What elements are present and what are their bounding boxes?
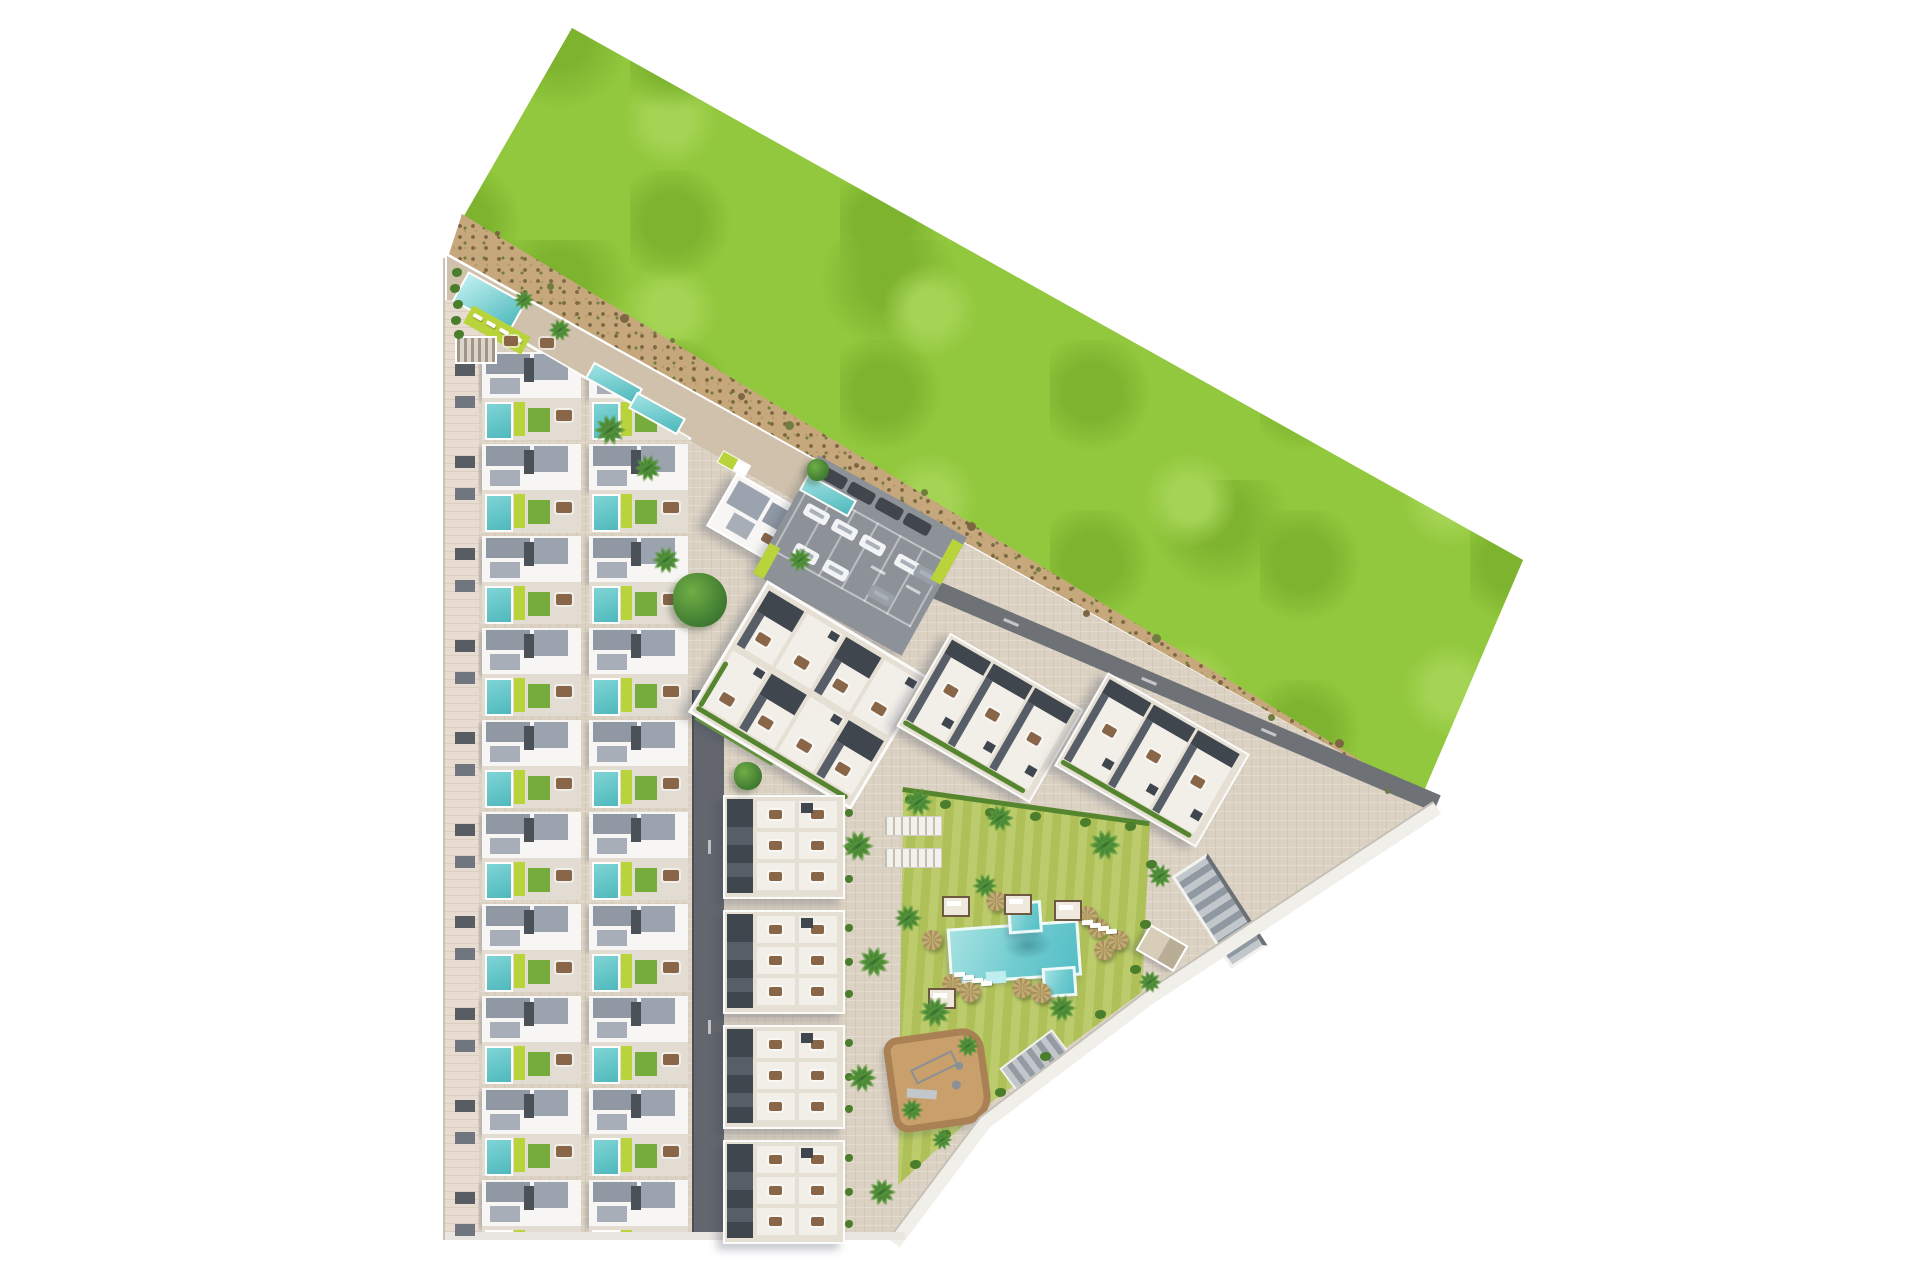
townhouse-roof <box>534 538 568 564</box>
stairwell-roof <box>753 667 766 679</box>
terrace-cell <box>757 1093 795 1120</box>
terrace-lawn <box>528 1052 550 1076</box>
sunbed-pad <box>621 770 632 804</box>
stairwell-roof <box>827 630 840 642</box>
townhouse-roof <box>490 746 520 762</box>
stairwell-roof <box>631 1186 641 1210</box>
dining-set <box>663 778 679 789</box>
roof-mid <box>727 863 753 877</box>
balcony-knob <box>455 580 475 592</box>
roof-dark <box>727 799 753 893</box>
stairwell-roof <box>1146 783 1159 796</box>
terrace-cell <box>799 832 837 859</box>
round-tree <box>673 573 727 627</box>
car-glass <box>837 524 853 535</box>
sunbed-pad <box>514 586 525 620</box>
dirt-shrub <box>547 283 554 290</box>
dining-set <box>1101 723 1117 738</box>
parasol <box>1012 978 1032 998</box>
terrace-lawn <box>635 960 657 984</box>
dining-set <box>556 410 572 421</box>
townhouse-roof <box>641 630 675 656</box>
townhouse-row <box>478 904 692 992</box>
terrace-cell <box>799 1062 837 1089</box>
townhouse-roof <box>597 1206 627 1222</box>
dining-set <box>556 594 572 605</box>
terrace-lawn <box>528 868 550 892</box>
townhouse-roof <box>641 1182 675 1208</box>
dirt-shrub <box>738 393 745 400</box>
roof-dark <box>727 914 753 1008</box>
dining-set <box>769 987 782 996</box>
road-dash <box>1141 677 1157 686</box>
terrace-lawn <box>528 960 550 984</box>
stairwell-roof <box>524 1002 534 1026</box>
townhouse-row <box>478 996 692 1084</box>
corner-pergola <box>455 336 497 364</box>
balcony-knob <box>455 488 475 500</box>
dining-set <box>504 336 518 346</box>
townhouse-roof <box>597 562 627 578</box>
terrace-lawn <box>528 592 550 616</box>
townhouse-roof <box>534 906 568 932</box>
townhouse-roof <box>534 630 568 656</box>
dirt-shrub <box>1385 789 1390 794</box>
daybed-cushion <box>1009 899 1023 904</box>
dining-set <box>943 683 959 698</box>
plunge-pool <box>592 1138 620 1176</box>
plunge-pool <box>485 678 513 716</box>
terrace-lawn <box>528 684 550 708</box>
balcony-knob <box>455 640 475 652</box>
dining-set <box>556 1054 572 1065</box>
plunge-pool <box>592 770 620 808</box>
roof-mid <box>727 978 753 992</box>
stairwell-roof <box>631 542 641 566</box>
townhouse-roof <box>534 1182 568 1208</box>
dining-set <box>811 872 824 881</box>
central-street <box>692 690 724 1240</box>
dining-set <box>811 841 824 850</box>
road-dash <box>1261 728 1277 737</box>
townhouse-row <box>478 536 692 624</box>
stairwell-roof <box>631 634 641 658</box>
roof-mid <box>727 1172 753 1190</box>
stairwell-roof <box>631 1094 641 1118</box>
stairwell-roof <box>524 1094 534 1118</box>
townhouse-roof <box>534 446 568 472</box>
townhouse-roof <box>641 906 675 932</box>
sunbed-pad <box>621 678 632 712</box>
plunge-pool <box>485 402 513 440</box>
townhouse-roof <box>534 722 568 748</box>
dirt-shrub <box>620 314 629 323</box>
balcony-knob <box>455 1008 475 1020</box>
pergola <box>884 816 942 836</box>
townhouse-roof <box>597 838 627 854</box>
car-glass <box>900 559 916 570</box>
dining-set <box>811 987 824 996</box>
balcony-knob <box>455 1040 475 1052</box>
townhouse-roof <box>597 1114 627 1130</box>
balcony-knob <box>455 548 475 560</box>
townhouse-roof <box>597 930 627 946</box>
sunbed-pad <box>514 494 525 528</box>
sun-lounger <box>981 981 992 987</box>
stairwell-roof <box>524 358 534 382</box>
townhouse-row <box>478 628 692 716</box>
roof-mid <box>727 1208 753 1222</box>
terrace-cell <box>757 1031 795 1058</box>
dirt-shrub <box>854 463 859 468</box>
terrace-cell <box>757 1146 795 1173</box>
stairwell-roof <box>524 910 534 934</box>
sunbed-pad <box>621 862 632 896</box>
terrace-lawn <box>528 776 550 800</box>
roof-mid <box>727 942 753 960</box>
terrace-cell <box>757 863 795 890</box>
dining-set <box>811 1217 824 1226</box>
sunbed-pad <box>514 862 525 896</box>
townhouse-roof <box>490 654 520 670</box>
terrace-cell <box>799 1177 837 1204</box>
dining-set <box>663 1054 679 1065</box>
terrace-lawn <box>635 684 657 708</box>
townhouse-roof <box>490 378 520 394</box>
cabana-daybed <box>928 988 956 1009</box>
car-glass <box>873 590 889 601</box>
plunge-pool <box>592 1046 620 1084</box>
road-dash <box>1003 618 1019 627</box>
car-glass <box>828 565 844 576</box>
plunge-pool <box>485 1138 513 1176</box>
plunge-pool <box>592 586 620 624</box>
round-tree <box>734 762 762 790</box>
townhouse-roof <box>641 722 675 748</box>
dirt-shrub <box>670 338 675 343</box>
terrace-lawn <box>528 408 550 432</box>
dining-set <box>769 810 782 819</box>
dining-set <box>984 707 1000 722</box>
townhouse-roof <box>597 654 627 670</box>
dining-set <box>769 956 782 965</box>
balcony-knob <box>455 1192 475 1204</box>
stairwell-roof <box>524 634 534 658</box>
sun-lounger <box>486 320 497 328</box>
stairwell-roof <box>524 818 534 842</box>
dining-set <box>1026 731 1042 746</box>
sunbed-pad <box>621 1138 632 1172</box>
stairwell-roof <box>631 726 641 750</box>
dining-set <box>556 962 572 973</box>
slide <box>906 1088 937 1099</box>
plunge-pool <box>592 862 620 900</box>
terrace-cell <box>799 947 837 974</box>
stairwell-roof <box>801 918 813 928</box>
dining-set <box>1145 749 1161 764</box>
terrace-lawn <box>635 868 657 892</box>
pergola <box>884 848 942 868</box>
townhouse-row <box>478 444 692 532</box>
townhouse-roof <box>641 446 675 472</box>
spring-toy <box>951 1080 961 1090</box>
sunbed-pad <box>621 586 632 620</box>
plunge-pool <box>485 862 513 900</box>
car-glass <box>809 508 825 519</box>
terrace-cell <box>799 978 837 1005</box>
plunge-pool <box>485 770 513 808</box>
townhouse-roof <box>490 930 520 946</box>
dining-set <box>769 1071 782 1080</box>
dining-set <box>556 502 572 513</box>
sunbed-pad <box>514 1046 525 1080</box>
balcony-knob <box>455 1100 475 1112</box>
stairwell-roof <box>941 717 954 730</box>
townhouse-roof <box>534 814 568 840</box>
dining-set <box>834 761 851 777</box>
townhouse-roof <box>534 998 568 1024</box>
balcony-knob <box>455 856 475 868</box>
climbing-frame <box>910 1050 958 1085</box>
round-tree <box>807 459 829 481</box>
plunge-pool <box>592 678 620 716</box>
townhouse-roof <box>490 562 520 578</box>
sunbed-pad <box>621 494 632 528</box>
parasol <box>922 930 942 950</box>
townhouse-roof <box>597 470 627 486</box>
townhouse-row <box>478 720 692 808</box>
dining-set <box>870 701 887 717</box>
dining-set <box>754 632 771 648</box>
daybed-cushion <box>1059 905 1073 910</box>
dining-set <box>811 956 824 965</box>
parasol <box>1031 983 1051 1003</box>
terrace-lawn <box>635 1052 657 1076</box>
stairwell-roof <box>801 1033 813 1043</box>
dining-set <box>769 925 782 934</box>
sunbed-pad <box>514 402 525 436</box>
dining-set <box>556 1146 572 1157</box>
balcony-knob <box>455 1224 475 1236</box>
parked-van <box>902 512 933 537</box>
dining-set <box>718 692 735 708</box>
terrace-cell <box>757 1177 795 1204</box>
townhouse-row <box>478 1088 692 1176</box>
plunge-pool <box>485 1046 513 1084</box>
dining-set <box>556 686 572 697</box>
apartment-block-d <box>723 795 845 899</box>
sun-lounger <box>1106 929 1117 935</box>
dining-set <box>811 1102 824 1111</box>
dining-set <box>769 1186 782 1195</box>
dirt-shrub <box>921 489 928 496</box>
terrace-cell <box>757 978 795 1005</box>
townhouse-roof <box>641 998 675 1024</box>
stairwell-roof <box>631 1002 641 1026</box>
balcony-knob <box>455 396 475 408</box>
townhouse-row <box>478 1180 692 1268</box>
dining-set <box>663 870 679 881</box>
terrace-cell <box>757 947 795 974</box>
stairwell-roof <box>801 1148 813 1158</box>
roof-mid <box>727 1057 753 1075</box>
stairwell-roof <box>905 677 918 689</box>
roof-mid <box>727 1093 753 1107</box>
townhouse-roof <box>534 1090 568 1116</box>
townhouse-roof <box>597 1022 627 1038</box>
sunbed-pad <box>514 954 525 988</box>
stairwell-roof <box>983 741 996 754</box>
apartment-block-d <box>723 910 845 1014</box>
west-fence-line <box>443 258 445 1240</box>
stairwell-roof <box>631 450 641 474</box>
dining-set <box>556 870 572 881</box>
stairwell-roof <box>1101 758 1114 771</box>
dining-set <box>832 678 849 694</box>
parasol <box>960 982 980 1002</box>
stairwell-roof <box>830 714 843 726</box>
terrace-cell <box>799 1208 837 1235</box>
balcony-knob <box>455 948 475 960</box>
dining-set <box>796 738 813 754</box>
stairwell-roof <box>524 726 534 750</box>
road-dash <box>708 840 711 854</box>
dining-set <box>811 1186 824 1195</box>
balcony-knob <box>455 1132 475 1144</box>
dining-set <box>769 1217 782 1226</box>
dining-set <box>769 872 782 881</box>
parked-van <box>874 496 905 521</box>
stairwell-roof <box>801 803 813 813</box>
terrace-lawn <box>635 500 657 524</box>
parasol <box>986 891 1006 911</box>
terrace-lawn <box>528 500 550 524</box>
townhouse-roof <box>490 1022 520 1038</box>
stairwell-roof <box>524 542 534 566</box>
sunbed-pad <box>621 1046 632 1080</box>
sunbed-pad <box>621 954 632 988</box>
townhouse-roof <box>490 1114 520 1130</box>
terrace-lawn <box>635 776 657 800</box>
car-glass <box>798 548 814 559</box>
cabana-daybed <box>1054 900 1082 921</box>
plunge-pool <box>485 586 513 624</box>
terrace-cell <box>757 1062 795 1089</box>
dining-set <box>811 1071 824 1080</box>
terrace-lawn <box>528 1144 550 1168</box>
dirt-shrub <box>1268 714 1275 721</box>
daybed-cushion <box>933 993 947 998</box>
balcony-knob <box>455 364 475 376</box>
site-plan-canvas <box>0 0 1920 1280</box>
sunbed-pad <box>514 1138 525 1172</box>
dining-set <box>556 778 572 789</box>
sun-lounger <box>473 313 484 321</box>
stairwell-roof <box>1024 765 1037 778</box>
stairwell-roof <box>524 450 534 474</box>
townhouse-roof <box>641 538 675 564</box>
townhouse-rows <box>478 316 692 1240</box>
dining-set <box>769 1155 782 1164</box>
balcony-knob <box>455 672 475 684</box>
terrace-cell <box>757 801 795 828</box>
dining-set <box>663 1146 679 1157</box>
balcony-knob <box>455 824 475 836</box>
sun-lounger <box>499 327 510 335</box>
cabana-daybed <box>942 896 970 917</box>
terrace-cell <box>799 863 837 890</box>
plunge-pool <box>592 954 620 992</box>
balcony-knob <box>455 916 475 928</box>
balcony-knob <box>455 732 475 744</box>
road-dash <box>708 1020 711 1034</box>
roof-dark <box>727 1029 753 1123</box>
car-glass <box>865 539 881 550</box>
apartment-block-d <box>723 1140 845 1244</box>
dining-set <box>540 338 554 348</box>
roof-mid <box>727 827 753 845</box>
terrace-cell <box>757 832 795 859</box>
townhouse-roof <box>597 746 627 762</box>
terrace-cell <box>757 916 795 943</box>
dining-set <box>757 715 774 731</box>
dining-set <box>663 962 679 973</box>
stairwell-roof <box>1190 809 1203 822</box>
stairwell-roof <box>631 910 641 934</box>
dining-set <box>793 655 810 671</box>
sunbed-pad <box>514 678 525 712</box>
roof-dark <box>727 1144 753 1238</box>
balcony-knob <box>455 764 475 776</box>
spring-toy <box>955 1061 964 1070</box>
townhouse-roof <box>641 1090 675 1116</box>
daybed-cushion <box>947 901 961 906</box>
terrace-lawn <box>635 1144 657 1168</box>
dining-set <box>769 841 782 850</box>
apartment-block-d <box>723 1025 845 1129</box>
cabana-daybed <box>1004 894 1032 915</box>
townhouse-roof <box>490 838 520 854</box>
stairwell-roof <box>524 1186 534 1210</box>
dining-set <box>769 1040 782 1049</box>
townhouse-roof <box>490 470 520 486</box>
dirt-shrub <box>1083 610 1090 617</box>
dining-set <box>663 502 679 513</box>
plunge-pool <box>485 494 513 532</box>
townhouse-roof <box>490 1206 520 1222</box>
dining-set <box>1190 774 1206 789</box>
terrace-cell <box>757 1208 795 1235</box>
townhouse-roof <box>641 814 675 840</box>
plunge-pool <box>592 494 620 532</box>
plunge-pool <box>592 402 620 440</box>
stairwell-roof <box>631 818 641 842</box>
townhouse-row <box>478 812 692 900</box>
terrace-lawn <box>635 592 657 616</box>
terrace-cell <box>799 1093 837 1120</box>
balcony-knob <box>455 456 475 468</box>
dining-set <box>663 686 679 697</box>
sunbed-pad <box>514 770 525 804</box>
plunge-pool <box>485 954 513 992</box>
dining-set <box>769 1102 782 1111</box>
